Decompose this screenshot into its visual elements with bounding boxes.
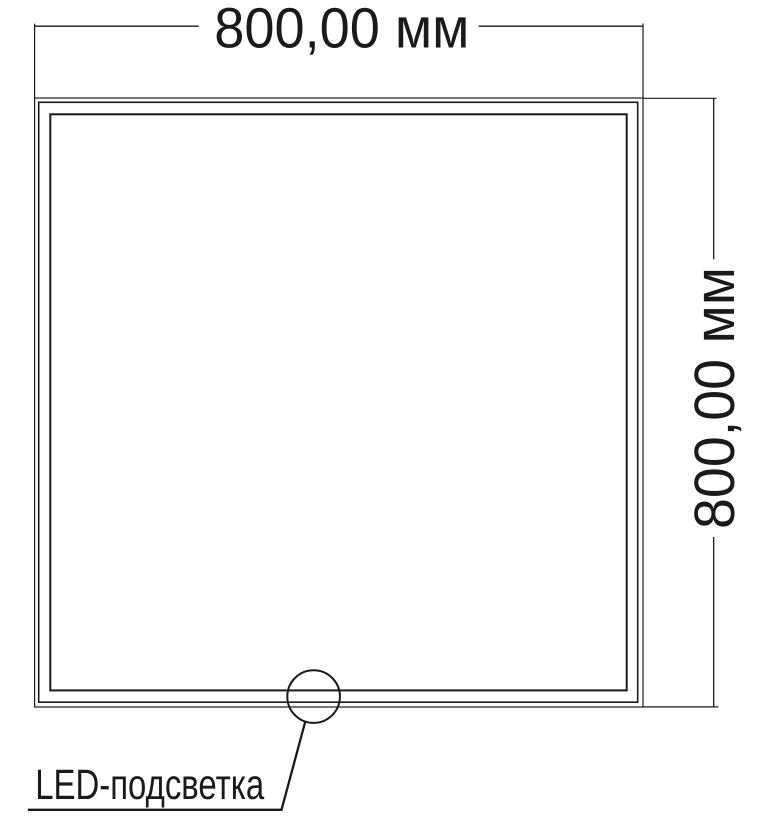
svg-text:LED-подсветка: LED-подсветка [35,762,264,809]
svg-text:800,00 мм: 800,00 мм [214,0,469,61]
svg-text:800,00 мм: 800,00 мм [683,267,747,529]
